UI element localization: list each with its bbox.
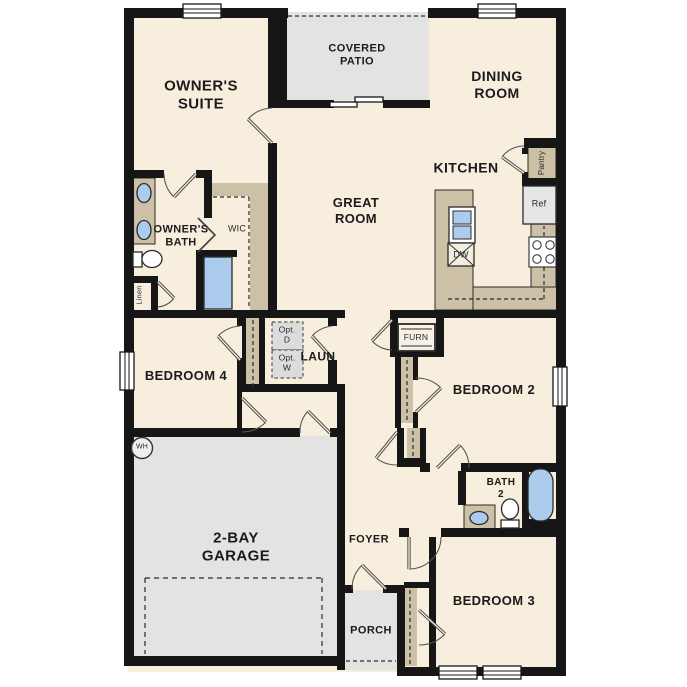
fixture-label-water-heater: WH (136, 444, 148, 453)
fixture-label-dishwasher: DW (453, 250, 468, 261)
room-label-porch: PORCH (350, 624, 392, 637)
fixture-label-refrigerator: Ref (532, 199, 547, 210)
bathtub-icon (528, 469, 553, 521)
kitchen-sink-icon (453, 226, 471, 239)
toilet-tank-icon (133, 252, 142, 267)
fixture-label-opt-washer: Opt. W (279, 353, 296, 374)
room-label-owners-suite: OWNER'S SUITE (164, 78, 238, 115)
room-label-bedroom-2: BEDROOM 2 (453, 382, 535, 398)
sliding-door-panel (355, 97, 383, 102)
room-label-kitchen: KITCHEN (433, 159, 498, 176)
bath-sink-icon (137, 184, 151, 203)
fixture-label-opt-dryer: Opt. D (279, 325, 296, 346)
fixture-label-pantry: Pantry (537, 151, 547, 175)
window-dining (478, 4, 516, 18)
toilet-tank-icon (501, 520, 519, 528)
floor-plan-graphic (0, 0, 687, 687)
room-label-bedroom-3: BEDROOM 3 (453, 593, 535, 609)
room-label-wic: WIC (228, 224, 246, 235)
room-label-dining-room: DINING ROOM (471, 68, 522, 102)
floor-plan: OWNER'S SUITE COVERED PATIO DINING ROOM … (0, 0, 687, 687)
room-label-bedroom-4: BEDROOM 4 (145, 368, 227, 384)
window-owners-suite (183, 4, 221, 18)
toilet-icon (502, 499, 519, 519)
room-label-great-room: GREAT ROOM (333, 195, 380, 227)
wic-shelf-side (250, 183, 268, 310)
window-bedroom3-b (483, 666, 521, 679)
shower-icon (204, 257, 232, 309)
room-label-owners-bath: OWNER'S BATH (154, 224, 209, 251)
sliding-door-panel (330, 102, 357, 107)
room-label-garage: 2-BAY GARAGE (202, 530, 270, 567)
room-label-laundry: LAUN (301, 350, 336, 365)
window-bedroom2 (553, 367, 567, 406)
window-bedroom3-a (439, 666, 477, 679)
kitchen-sink-icon (453, 211, 471, 224)
fixture-label-furnace: FURN (404, 332, 428, 342)
room-label-covered-patio: COVERED PATIO (328, 43, 385, 70)
room-label-bath-2: BATH 2 (487, 477, 516, 501)
fixture-label-linen: Linen (134, 285, 143, 304)
toilet-icon (142, 251, 162, 268)
bath-sink-icon (137, 221, 151, 240)
room-label-foyer: FOYER (349, 533, 389, 546)
window-bedroom4 (120, 352, 134, 390)
bath2-sink-icon (470, 512, 488, 525)
